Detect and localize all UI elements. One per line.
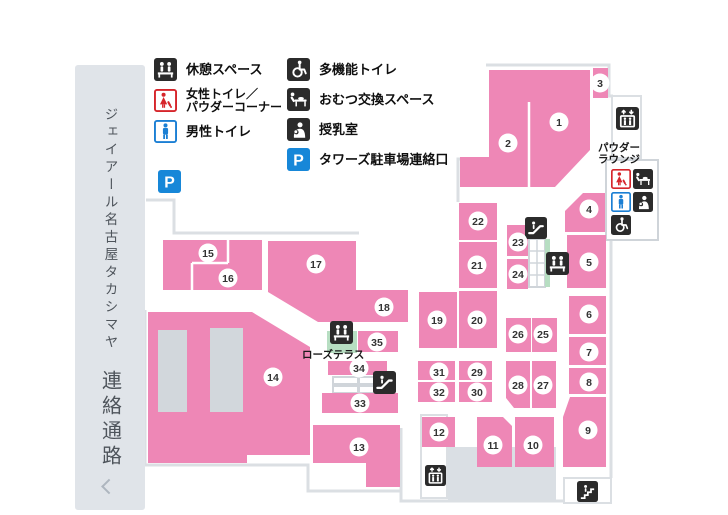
legend-label: 多機能トイレ <box>319 62 397 77</box>
shop-number-12: 12 <box>433 427 445 439</box>
shop-number-7: 7 <box>586 347 592 359</box>
shop-number-1: 1 <box>556 117 562 129</box>
shop-block-17 <box>268 241 356 322</box>
legend-column-right: 多機能トイレおむつ交換スペース授乳室タワーズ駐車場連絡口 <box>287 58 448 171</box>
shop-number-2: 2 <box>505 138 511 150</box>
parking-icon <box>158 170 181 193</box>
shop-number-33: 33 <box>354 398 366 410</box>
shop-number-25: 25 <box>537 329 549 341</box>
wheelchair-icon <box>287 58 310 81</box>
legend-label: 女性トイレ／パウダーコーナー <box>186 88 282 113</box>
shop-number-17: 17 <box>310 259 322 271</box>
men-icon <box>154 120 177 143</box>
shop-number-13: 13 <box>353 442 365 454</box>
wall-line <box>146 200 359 233</box>
shop-number-9: 9 <box>585 425 591 437</box>
elevator-icon <box>425 465 446 486</box>
shop-number-19: 19 <box>431 315 443 327</box>
shop-number-8: 8 <box>586 377 592 389</box>
legend-item-rest: 休憩スペース <box>154 58 282 81</box>
legend-column-left: 休憩スペース女性トイレ／パウダーコーナー男性トイレ <box>154 58 282 143</box>
legend-label: 男性トイレ <box>186 124 251 139</box>
men-icon <box>612 193 630 211</box>
shop-number-21: 21 <box>471 260 483 272</box>
column-void <box>158 330 187 412</box>
shop-number-16: 16 <box>222 273 234 285</box>
stairs-icon <box>577 481 598 502</box>
shop-number-20: 20 <box>471 315 483 327</box>
legend-item-wheelchair: 多機能トイレ <box>287 58 448 81</box>
women-icon <box>154 89 177 112</box>
shop-number-27: 27 <box>537 380 549 392</box>
sidebar-connecting-passage: ジェイアール名古屋タカシマヤ 連絡通路 <box>75 65 145 510</box>
sidebar-title: ジェイアール名古屋タカシマヤ <box>103 107 118 352</box>
rest-icon <box>330 321 353 344</box>
shop-number-29: 29 <box>471 367 483 379</box>
shop-number-28: 28 <box>512 380 524 392</box>
escalator-icon <box>525 217 547 239</box>
shop-number-31: 31 <box>433 367 445 379</box>
legend-item-parking: タワーズ駐車場連絡口 <box>287 148 448 171</box>
shop-number-23: 23 <box>512 237 524 249</box>
shop-number-3: 3 <box>597 78 603 90</box>
stair-tread <box>333 377 358 384</box>
shop-number-34: 34 <box>353 363 365 375</box>
shop-number-35: 35 <box>371 337 383 349</box>
rest-icon <box>546 252 569 275</box>
shop-number-30: 30 <box>471 387 483 399</box>
collapse-chevron-icon[interactable] <box>101 479 117 495</box>
legend-label: タワーズ駐車場連絡口 <box>319 152 448 167</box>
legend-item-nursing: 授乳室 <box>287 118 448 141</box>
wheelchair-icon <box>611 215 631 235</box>
diaper-icon <box>633 169 653 189</box>
shop-number-14: 14 <box>267 372 279 384</box>
diaper-icon <box>287 88 310 111</box>
legend-item-women: 女性トイレ／パウダーコーナー <box>154 88 282 113</box>
shop-number-26: 26 <box>512 329 524 341</box>
shop-number-24: 24 <box>512 269 524 281</box>
nursing-icon <box>633 192 653 212</box>
women-icon <box>612 170 630 188</box>
legend-item-diaper: おむつ交換スペース <box>287 88 448 111</box>
legend-label: 休憩スペース <box>186 62 262 77</box>
shop-number-5: 5 <box>586 257 592 269</box>
shop-number-4: 4 <box>586 204 592 216</box>
sidebar-vertical-text: ジェイアール名古屋タカシマヤ 連絡通路 <box>96 107 125 470</box>
shop-block-2 <box>460 102 529 187</box>
column-void <box>210 328 243 412</box>
legend-item-men: 男性トイレ <box>154 120 282 143</box>
shop-number-32: 32 <box>433 387 445 399</box>
sidebar-subtitle: 連絡通路 <box>99 370 121 470</box>
shop-number-11: 11 <box>487 440 498 452</box>
floor-guide-page: 1234567891011121314151617181920212223242… <box>0 0 728 515</box>
nursing-icon <box>287 118 310 141</box>
shop-number-22: 22 <box>472 216 484 228</box>
shop-number-10: 10 <box>527 440 539 452</box>
elevator-icon <box>616 107 639 130</box>
escalator-icon <box>373 371 396 394</box>
rose-terrace-label: ローズテラス <box>302 348 364 361</box>
legend-label: 授乳室 <box>319 122 358 137</box>
rest-icon <box>154 58 177 81</box>
legend-label: おむつ交換スペース <box>319 92 434 107</box>
stair-tread <box>333 386 358 393</box>
shop-number-18: 18 <box>378 302 390 314</box>
powder-lounge-label: パウダーラウンジ <box>598 141 640 166</box>
parking-icon <box>287 148 310 171</box>
shop-number-15: 15 <box>202 248 214 260</box>
shop-number-6: 6 <box>586 309 592 321</box>
